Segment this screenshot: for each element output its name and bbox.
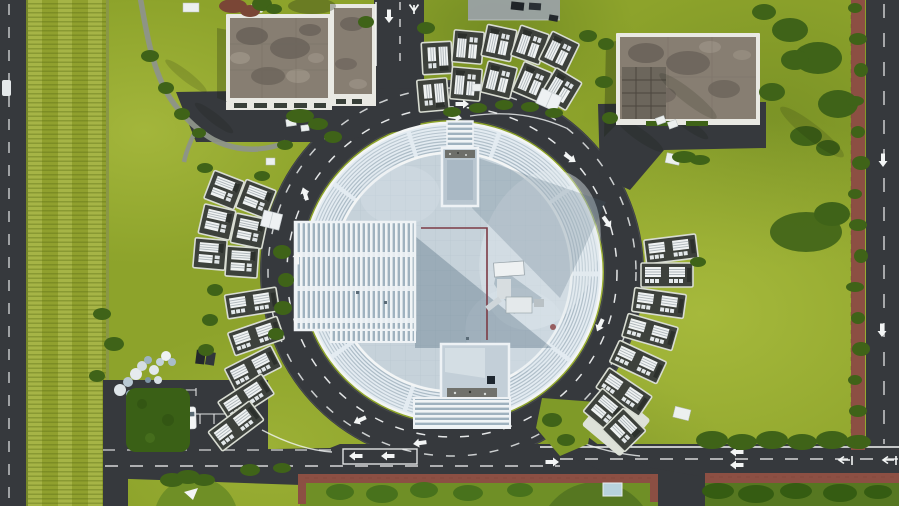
sidewalk-bush <box>846 96 864 106</box>
ac-rooftop-building <box>641 263 693 287</box>
ac-rooftop-building <box>225 246 259 278</box>
scene <box>0 0 899 506</box>
ac-rooftop-building <box>193 238 227 271</box>
parking-access-road <box>103 380 128 506</box>
sidewalk-bush <box>848 189 862 199</box>
sidewalk-bush <box>849 219 867 231</box>
aerial-photo <box>0 0 899 506</box>
north-access-road <box>374 0 424 92</box>
ac-rooftop-building <box>421 41 453 75</box>
sidewalk-bush <box>848 3 862 13</box>
sidewalk-bush <box>854 435 868 449</box>
sidewalk-bush <box>846 282 864 292</box>
blue-shed <box>603 483 622 496</box>
parked-car <box>529 3 541 11</box>
parked-car <box>511 1 525 10</box>
vehicles <box>2 80 216 429</box>
paved-pad-north <box>468 0 560 22</box>
hedge-block <box>126 388 190 452</box>
rooftop-south-annex <box>441 344 509 400</box>
ac-rooftop-building <box>632 287 687 318</box>
sidewalk-bush <box>852 156 870 170</box>
flat-roof-building-north <box>217 4 376 110</box>
rooftop-louver-array <box>295 222 415 330</box>
sidewalk-bush <box>852 342 870 356</box>
car-left-road <box>2 80 11 96</box>
sidewalk-bush <box>849 33 867 45</box>
sidewalk-bush <box>854 63 868 77</box>
ac-rooftop-building <box>452 30 485 64</box>
sidewalk-bush <box>854 249 868 263</box>
ac-rooftop-building <box>644 234 699 264</box>
sidewalk-bush <box>851 126 865 138</box>
sidewalk-bush <box>849 405 867 417</box>
south-walkway <box>414 398 510 428</box>
sidewalk-bush <box>851 312 865 324</box>
ac-rooftop-building <box>481 61 518 99</box>
ac-rooftop-building <box>417 78 450 112</box>
left-perimeter-road <box>0 0 26 506</box>
sidewalk-bush <box>848 375 862 385</box>
rooftop-north-annex <box>442 148 478 206</box>
ac-rooftop-building <box>198 204 236 240</box>
right-perimeter-road <box>866 0 899 506</box>
